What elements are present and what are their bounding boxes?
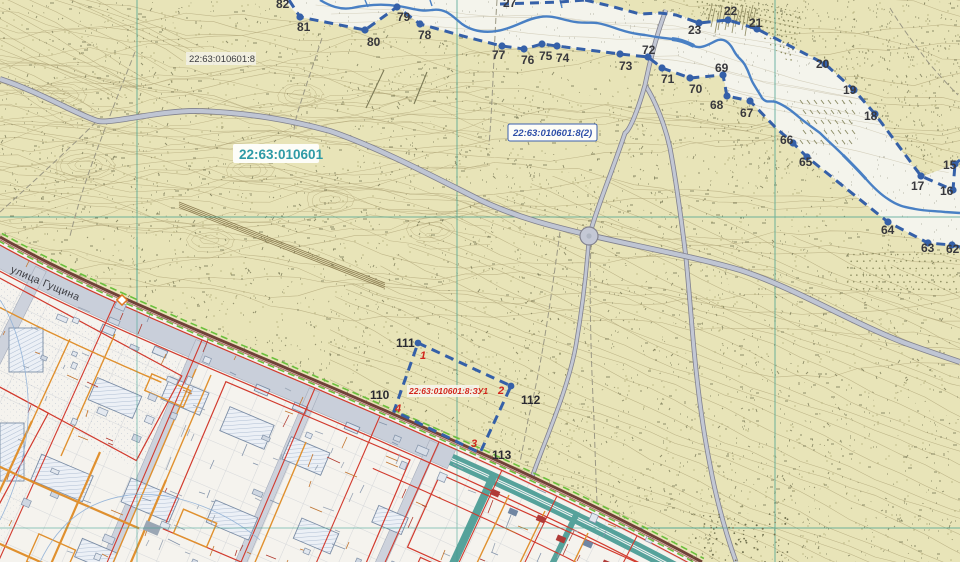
svg-text:22:63:010601:8: 22:63:010601:8 [189,54,255,65]
svg-text:27: 27 [503,0,517,10]
svg-text:110: 110 [370,388,390,402]
svg-text:17: 17 [911,179,925,193]
svg-text:77: 77 [492,48,506,62]
svg-text:79: 79 [397,10,411,24]
svg-text:81: 81 [297,20,311,34]
svg-text:64: 64 [881,223,895,237]
svg-text:62: 62 [946,242,960,256]
svg-text:112: 112 [521,393,541,407]
svg-text:18: 18 [864,109,878,123]
svg-text:72: 72 [642,43,656,57]
svg-text:4: 4 [394,403,401,415]
svg-text:63: 63 [921,241,935,255]
svg-text:1: 1 [420,350,426,362]
svg-text:70: 70 [689,82,703,96]
svg-text:113: 113 [492,448,512,462]
svg-text:111: 111 [396,336,415,350]
svg-text:78: 78 [418,28,432,42]
svg-text:67: 67 [740,106,754,120]
svg-text:15: 15 [943,158,957,172]
svg-text:22:63:010601:8:ЗУ1: 22:63:010601:8:ЗУ1 [408,386,488,396]
svg-text:71: 71 [661,72,675,86]
svg-text:73: 73 [619,59,633,73]
svg-text:65: 65 [799,155,813,169]
svg-text:74: 74 [556,51,570,65]
svg-text:20: 20 [816,57,830,71]
svg-text:19: 19 [843,83,857,97]
svg-text:2: 2 [497,385,504,397]
svg-text:69: 69 [715,61,729,75]
svg-text:21: 21 [749,16,763,30]
svg-text:68: 68 [710,98,724,112]
svg-text:23: 23 [688,23,702,37]
svg-text:22:63:010601: 22:63:010601 [239,147,324,162]
svg-text:22:63:010601:8(2): 22:63:010601:8(2) [512,128,592,139]
svg-text:80: 80 [367,35,381,49]
svg-text:66: 66 [780,133,794,147]
svg-text:16: 16 [940,184,954,198]
svg-text:22: 22 [724,4,738,18]
svg-text:3: 3 [471,438,477,450]
svg-text:75: 75 [539,49,553,63]
svg-text:76: 76 [521,53,535,67]
svg-text:82: 82 [276,0,290,11]
